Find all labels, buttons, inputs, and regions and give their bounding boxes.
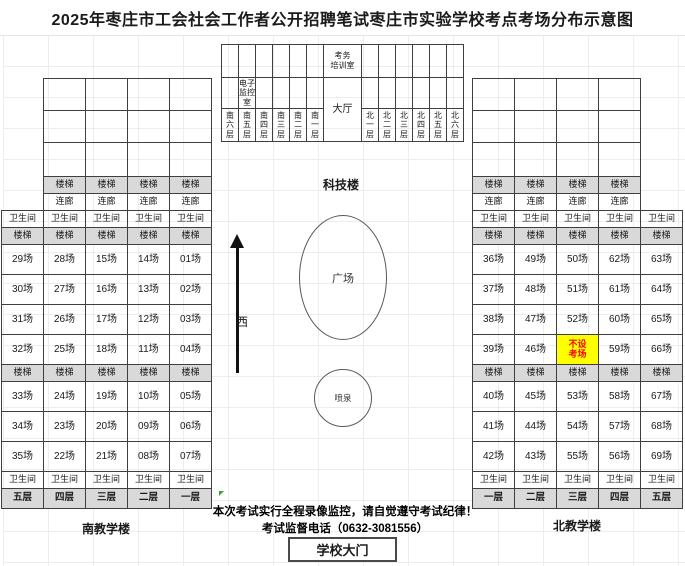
room-cell: 47场 <box>515 305 557 335</box>
floor-cell: 三层 <box>557 489 599 509</box>
room-cell: 22场 <box>44 442 86 472</box>
south-wing-cell: 南二层 <box>290 109 307 142</box>
north-wing-cell: 北四层 <box>413 109 430 142</box>
stairs-cell: 楼梯 <box>557 365 599 382</box>
stairs-cell: 楼梯 <box>473 177 515 194</box>
restroom-cell: 卫生间 <box>641 211 683 228</box>
room-cell: 11场 <box>128 335 170 365</box>
room-cell: 68场 <box>641 412 683 442</box>
notice-line-2: 考试监督电话（0632-3081556） <box>205 521 485 538</box>
empty-cell <box>473 111 515 143</box>
empty-cell <box>222 45 239 78</box>
south-wing-label: 南一层 <box>311 111 320 140</box>
north-wing-cell: 北五层 <box>430 109 447 142</box>
restroom-cell: 卫生间 <box>2 472 44 489</box>
room-cell: 39场 <box>473 335 515 365</box>
room-cell: 41场 <box>473 412 515 442</box>
room-cell: 06场 <box>170 412 212 442</box>
grid-gap <box>2 111 44 143</box>
room-cell: 04场 <box>170 335 212 365</box>
room-cell: 69场 <box>641 442 683 472</box>
empty-cell <box>170 143 212 177</box>
room-cell: 32场 <box>2 335 44 365</box>
north-building-caption: 北教学楼 <box>472 517 682 534</box>
south-building-caption: 南教学楼 <box>1 520 211 537</box>
room-cell: 36场 <box>473 245 515 275</box>
room-cell: 35场 <box>2 442 44 472</box>
corridor-cell: 连廊 <box>515 194 557 211</box>
stairs-cell: 楼梯 <box>86 365 128 382</box>
empty-cell <box>44 143 86 177</box>
room-cell: 21场 <box>86 442 128 472</box>
empty-cell <box>273 45 290 78</box>
room-cell: 15场 <box>86 245 128 275</box>
stairs-cell: 楼梯 <box>557 228 599 245</box>
south-building-rows: 楼梯楼梯楼梯楼梯连廊连廊连廊连廊卫生间卫生间卫生间卫生间卫生间楼梯楼梯楼梯楼梯楼… <box>2 79 212 509</box>
room-cell: 08场 <box>128 442 170 472</box>
empty-cell <box>362 78 379 109</box>
south-wing-label: 南四层 <box>260 111 269 140</box>
room-cell: 61场 <box>599 275 641 305</box>
room-cell: 42场 <box>473 442 515 472</box>
empty-cell <box>290 78 307 109</box>
room-cell: 60场 <box>599 305 641 335</box>
stairs-cell: 楼梯 <box>44 177 86 194</box>
room-cell: 67场 <box>641 382 683 412</box>
empty-cell <box>396 78 413 109</box>
room-cell: 10场 <box>128 382 170 412</box>
empty-cell <box>473 79 515 111</box>
stairs-cell: 楼梯 <box>128 177 170 194</box>
empty-cell <box>128 79 170 111</box>
stairs-cell: 楼梯 <box>2 365 44 382</box>
room-cell: 49场 <box>515 245 557 275</box>
restroom-cell: 卫生间 <box>557 472 599 489</box>
south-wing-cell: 南五层 <box>239 109 256 142</box>
south-wing-cell: 南四层 <box>256 109 273 142</box>
stairs-cell: 楼梯 <box>170 177 212 194</box>
room-cell: 64场 <box>641 275 683 305</box>
empty-cell <box>413 78 430 109</box>
room-cell: 13场 <box>128 275 170 305</box>
north-wing-label: 北六层 <box>451 111 460 140</box>
south-wing-label: 南三层 <box>277 111 286 140</box>
room-cell: 43场 <box>515 442 557 472</box>
empty-cell <box>307 78 324 109</box>
corridor-cell: 连廊 <box>44 194 86 211</box>
stairs-cell: 楼梯 <box>170 365 212 382</box>
empty-cell <box>396 45 413 78</box>
floor-cell: 二层 <box>128 489 170 509</box>
grid-gap <box>2 143 44 177</box>
restroom-cell: 卫生间 <box>128 211 170 228</box>
corridor-cell: 连廊 <box>86 194 128 211</box>
room-cell: 66场 <box>641 335 683 365</box>
room-cell: 58场 <box>599 382 641 412</box>
empty-cell <box>290 45 307 78</box>
west-direction-label: 西 <box>236 313 248 330</box>
north-wing-cell: 北三层 <box>396 109 413 142</box>
room-cell: 46场 <box>515 335 557 365</box>
floor-cell: 五层 <box>2 489 44 509</box>
empty-cell <box>128 111 170 143</box>
room-cell: 20场 <box>86 412 128 442</box>
room-cell: 18场 <box>86 335 128 365</box>
stairs-cell: 楼梯 <box>44 365 86 382</box>
stairs-cell: 楼梯 <box>515 365 557 382</box>
stairs-cell: 楼梯 <box>86 228 128 245</box>
stairs-cell: 楼梯 <box>2 228 44 245</box>
north-wing-cell: 北二层 <box>379 109 396 142</box>
restroom-cell: 卫生间 <box>86 472 128 489</box>
room-cell: 05场 <box>170 382 212 412</box>
room-cell: 45场 <box>515 382 557 412</box>
south-wing-cell: 南三层 <box>273 109 290 142</box>
south-wing-label: 南五层 <box>243 111 252 140</box>
north-building-rows: 楼梯楼梯楼梯楼梯连廊连廊连廊连廊卫生间卫生间卫生间卫生间卫生间楼梯楼梯楼梯楼梯楼… <box>473 79 683 509</box>
empty-cell <box>273 78 290 109</box>
empty-cell <box>128 143 170 177</box>
room-cell: 02场 <box>170 275 212 305</box>
stairs-cell: 楼梯 <box>641 228 683 245</box>
north-wing-cell: 北六层 <box>447 109 464 142</box>
stairs-cell: 楼梯 <box>599 228 641 245</box>
empty-cell <box>473 143 515 177</box>
school-gate-box: 学校大门 <box>288 537 397 562</box>
floor-cell: 二层 <box>515 489 557 509</box>
restroom-cell: 卫生间 <box>170 472 212 489</box>
restroom-cell: 卫生间 <box>473 211 515 228</box>
room-cell: 09场 <box>128 412 170 442</box>
empty-cell <box>430 78 447 109</box>
room-cell: 26场 <box>44 305 86 335</box>
room-cell: 12场 <box>128 305 170 335</box>
empty-cell <box>256 78 273 109</box>
south-wing-cell: 南一层 <box>307 109 324 142</box>
room-cell: 50场 <box>557 245 599 275</box>
stairs-cell: 楼梯 <box>473 228 515 245</box>
north-wing-label: 北五层 <box>434 111 443 140</box>
floor-cell: 四层 <box>599 489 641 509</box>
stairs-cell: 楼梯 <box>128 228 170 245</box>
restroom-cell: 卫生间 <box>515 211 557 228</box>
empty-cell <box>86 143 128 177</box>
empty-cell <box>515 79 557 111</box>
north-wing-label: 北三层 <box>400 111 409 140</box>
science-building-table: 考务 培训室 电子 监控 室 大厅 <box>221 44 464 142</box>
restroom-cell: 卫生间 <box>599 472 641 489</box>
empty-cell <box>447 78 464 109</box>
grid-gap <box>641 111 683 143</box>
room-cell: 34场 <box>2 412 44 442</box>
room-cell: 51场 <box>557 275 599 305</box>
empty-cell <box>86 79 128 111</box>
empty-cell <box>239 45 256 78</box>
plaza-label: 广场 <box>332 270 354 286</box>
stairs-cell: 楼梯 <box>641 365 683 382</box>
room-cell: 44场 <box>515 412 557 442</box>
stairs-cell: 楼梯 <box>86 177 128 194</box>
room-cell: 56场 <box>599 442 641 472</box>
empty-cell <box>447 45 464 78</box>
fountain-label: 喷泉 <box>334 392 351 404</box>
school-gate-label: 学校大门 <box>316 540 368 559</box>
room-cell: 07场 <box>170 442 212 472</box>
corridor-cell: 连廊 <box>599 194 641 211</box>
restroom-cell: 卫生间 <box>641 472 683 489</box>
stairs-cell: 楼梯 <box>473 365 515 382</box>
monitor-room-cell: 电子 监控 室 <box>239 78 256 109</box>
south-wing-cell: 南六层 <box>222 109 239 142</box>
empty-cell <box>413 45 430 78</box>
north-building-table: 楼梯楼梯楼梯楼梯连廊连廊连廊连廊卫生间卫生间卫生间卫生间卫生间楼梯楼梯楼梯楼梯楼… <box>472 78 683 509</box>
empty-cell <box>430 45 447 78</box>
room-cell: 62场 <box>599 245 641 275</box>
grid-gap <box>641 177 683 194</box>
empty-cell <box>256 45 273 78</box>
north-wing-cell: 北一层 <box>362 109 379 142</box>
north-wing-label: 北一层 <box>366 111 375 140</box>
stairs-cell: 楼梯 <box>128 365 170 382</box>
floor-cell: 三层 <box>86 489 128 509</box>
room-cell: 52场 <box>557 305 599 335</box>
room-cell: 54场 <box>557 412 599 442</box>
training-room-cell: 考务 培训室 <box>324 45 362 78</box>
grid-gap <box>641 194 683 211</box>
north-arrow-icon <box>236 246 239 373</box>
restroom-cell: 卫生间 <box>557 211 599 228</box>
science-building-caption: 科技楼 <box>221 176 461 193</box>
no-exam-room-cell: 不设 考场 <box>557 335 599 365</box>
room-cell: 59场 <box>599 335 641 365</box>
grid-gap <box>641 79 683 111</box>
grid-gap <box>641 143 683 177</box>
room-cell: 03场 <box>170 305 212 335</box>
stairs-cell: 楼梯 <box>515 228 557 245</box>
cell-flag-icon <box>219 491 224 496</box>
empty-cell <box>515 143 557 177</box>
empty-cell <box>222 78 239 109</box>
north-arrow-head-icon <box>230 234 244 248</box>
empty-cell <box>599 143 641 177</box>
corridor-cell: 连廊 <box>128 194 170 211</box>
empty-cell <box>44 111 86 143</box>
notice-line-1: 本次考试实行全程录像监控，请自觉遵守考试纪律！ <box>205 504 485 521</box>
empty-cell <box>379 45 396 78</box>
restroom-cell: 卫生间 <box>599 211 641 228</box>
room-cell: 37场 <box>473 275 515 305</box>
restroom-cell: 卫生间 <box>128 472 170 489</box>
page-title: 2025年枣庄市工会社会工作者公开招聘笔试枣庄市实验学校考点考场分布示意图 <box>0 0 685 36</box>
room-cell: 28场 <box>44 245 86 275</box>
empty-cell <box>557 79 599 111</box>
room-cell: 48场 <box>515 275 557 305</box>
room-cell: 19场 <box>86 382 128 412</box>
south-wing-label: 南六层 <box>226 111 235 140</box>
room-cell: 33场 <box>2 382 44 412</box>
plaza-ellipse: 广场 <box>299 215 387 340</box>
empty-cell <box>44 79 86 111</box>
empty-cell <box>170 111 212 143</box>
corridor-cell: 连廊 <box>170 194 212 211</box>
room-cell: 27场 <box>44 275 86 305</box>
room-cell: 63场 <box>641 245 683 275</box>
restroom-cell: 卫生间 <box>2 211 44 228</box>
room-cell: 24场 <box>44 382 86 412</box>
stairs-cell: 楼梯 <box>170 228 212 245</box>
restroom-cell: 卫生间 <box>44 472 86 489</box>
empty-cell <box>307 45 324 78</box>
empty-cell <box>557 111 599 143</box>
empty-cell <box>362 45 379 78</box>
empty-cell <box>86 111 128 143</box>
room-cell: 65场 <box>641 305 683 335</box>
room-cell: 16场 <box>86 275 128 305</box>
restroom-cell: 卫生间 <box>473 472 515 489</box>
grid-gap <box>2 79 44 111</box>
north-wing-label: 北四层 <box>417 111 426 140</box>
restroom-cell: 卫生间 <box>170 211 212 228</box>
grid-gap <box>2 177 44 194</box>
empty-cell <box>170 79 212 111</box>
room-cell: 31场 <box>2 305 44 335</box>
restroom-cell: 卫生间 <box>515 472 557 489</box>
corridor-cell: 连廊 <box>473 194 515 211</box>
room-cell: 53场 <box>557 382 599 412</box>
room-cell: 14场 <box>128 245 170 275</box>
grid-gap <box>2 194 44 211</box>
stairs-cell: 楼梯 <box>515 177 557 194</box>
room-cell: 30场 <box>2 275 44 305</box>
room-cell: 55场 <box>557 442 599 472</box>
room-cell: 23场 <box>44 412 86 442</box>
restroom-cell: 卫生间 <box>44 211 86 228</box>
stairs-cell: 楼梯 <box>44 228 86 245</box>
floor-cell: 四层 <box>44 489 86 509</box>
room-cell: 38场 <box>473 305 515 335</box>
room-cell: 40场 <box>473 382 515 412</box>
empty-cell <box>557 143 599 177</box>
room-cell: 29场 <box>2 245 44 275</box>
hall-cell: 大厅 <box>324 78 362 142</box>
exam-venue-map: 2025年枣庄市工会社会工作者公开招聘笔试枣庄市实验学校考点考场分布示意图 楼梯… <box>0 0 685 566</box>
south-building-table: 楼梯楼梯楼梯楼梯连廊连廊连廊连廊卫生间卫生间卫生间卫生间卫生间楼梯楼梯楼梯楼梯楼… <box>1 78 212 509</box>
north-wing-label: 北二层 <box>383 111 392 140</box>
room-cell: 01场 <box>170 245 212 275</box>
room-cell: 25场 <box>44 335 86 365</box>
stairs-cell: 楼梯 <box>599 177 641 194</box>
fountain-circle: 喷泉 <box>314 369 372 427</box>
empty-cell <box>599 111 641 143</box>
south-wing-label: 南二层 <box>294 111 303 140</box>
empty-cell <box>379 78 396 109</box>
stairs-cell: 楼梯 <box>599 365 641 382</box>
stairs-cell: 楼梯 <box>557 177 599 194</box>
room-cell: 57场 <box>599 412 641 442</box>
empty-cell <box>599 79 641 111</box>
restroom-cell: 卫生间 <box>86 211 128 228</box>
exam-notice: 本次考试实行全程录像监控，请自觉遵守考试纪律！ 考试监督电话（0632-3081… <box>205 504 485 538</box>
room-cell: 17场 <box>86 305 128 335</box>
corridor-cell: 连廊 <box>557 194 599 211</box>
empty-cell <box>515 111 557 143</box>
floor-cell: 五层 <box>641 489 683 509</box>
